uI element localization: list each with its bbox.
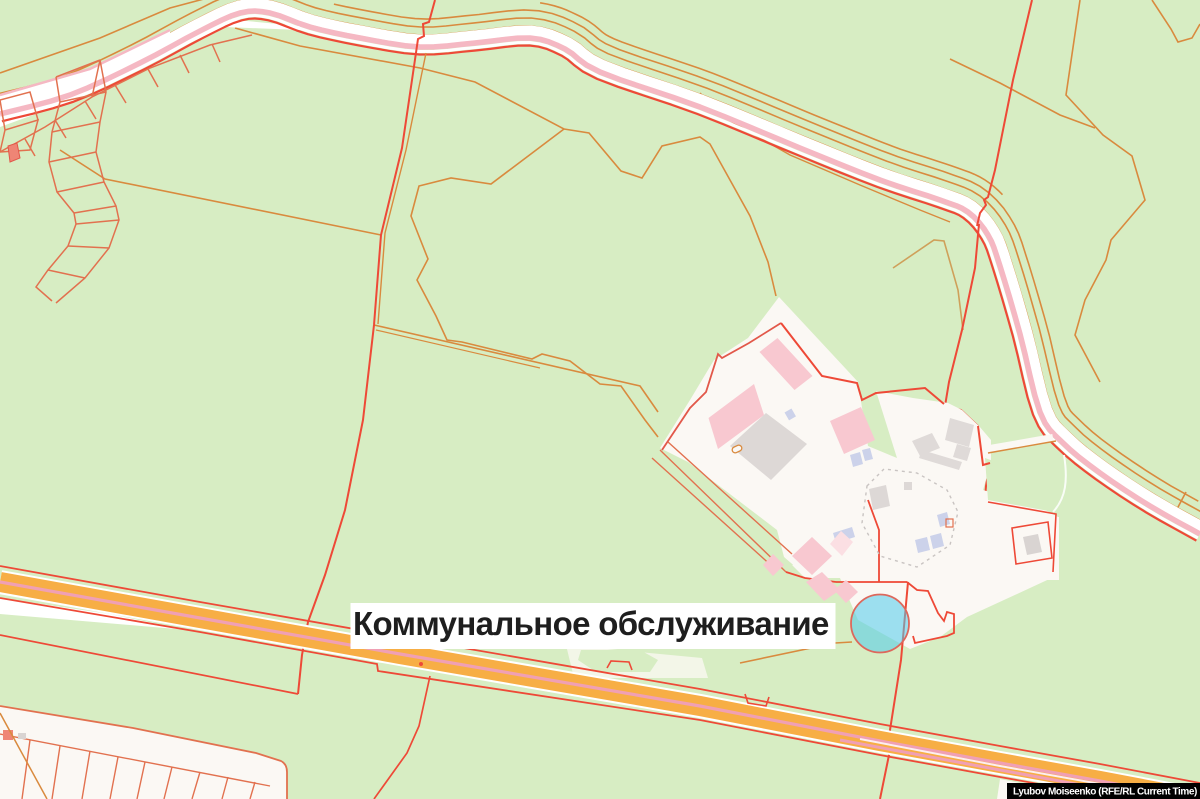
svg-text:Коммунальное обслуживание: Коммунальное обслуживание: [353, 605, 829, 642]
svg-text:Lyubov Moiseenko (RFE/RL Curre: Lyubov Moiseenko (RFE/RL Current Time): [1013, 787, 1197, 798]
